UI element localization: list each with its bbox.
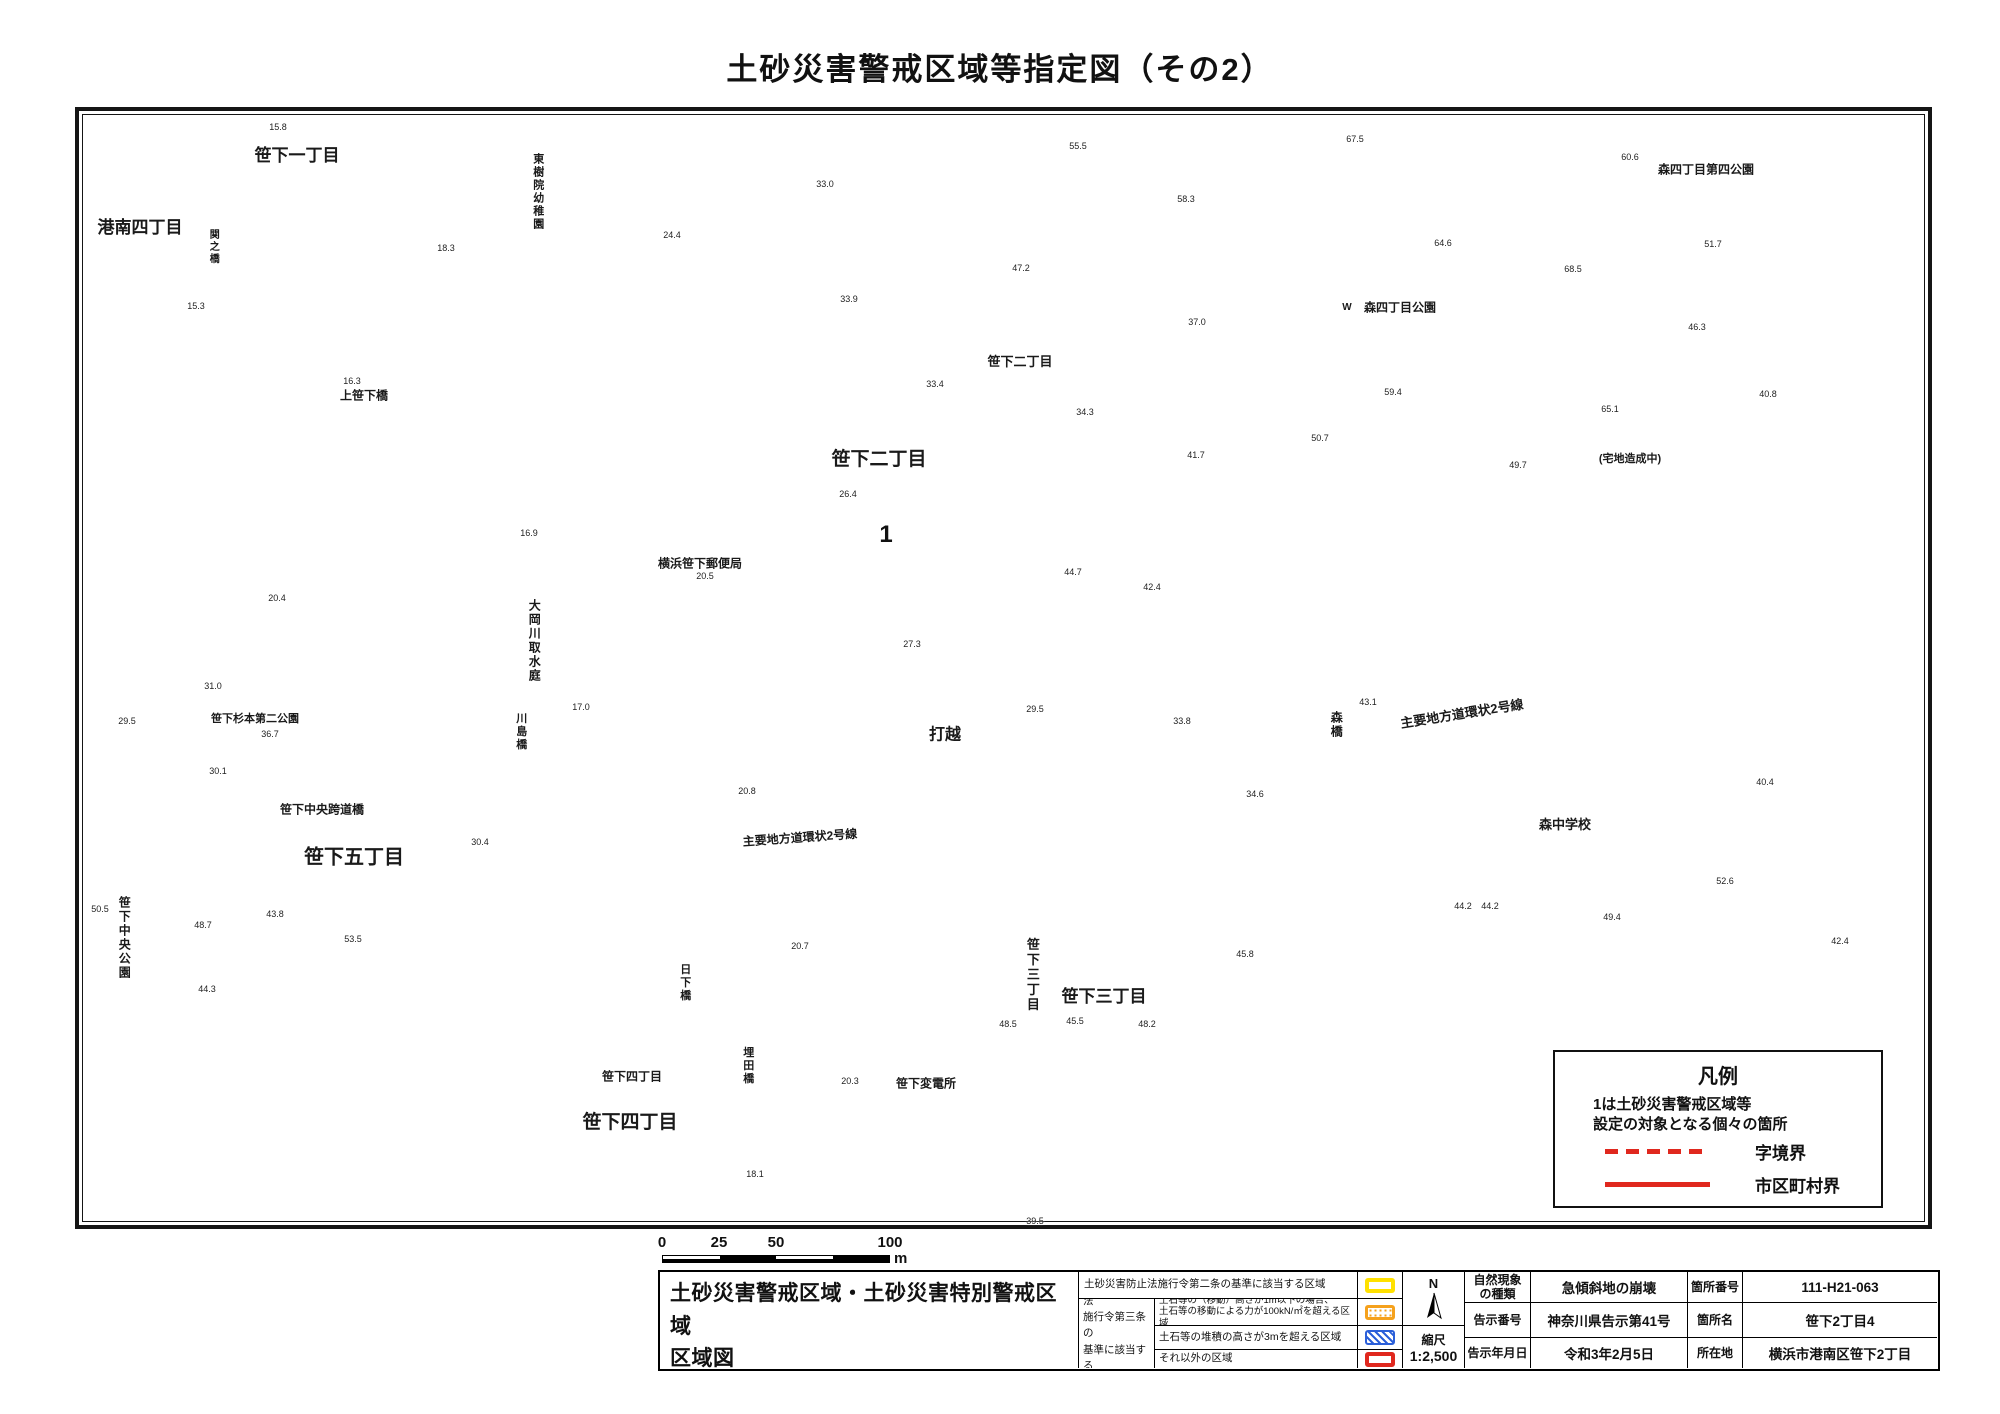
meta-value: 111-H21-063	[1742, 1272, 1937, 1302]
north-arrow-icon	[1423, 1291, 1445, 1321]
meta-label: 告示年月日	[1464, 1337, 1530, 1368]
meta-label: 所在地	[1687, 1337, 1742, 1368]
north-indicator-cell: N	[1402, 1272, 1464, 1325]
legend-description: 1は土砂災害警戒区域等 設定の対象となる個々の箇所	[1593, 1095, 1881, 1136]
scale-unit: m	[894, 1250, 907, 1267]
solid-boundary-sample-icon	[1605, 1182, 1710, 1187]
yellow-outline-swatch-icon	[1365, 1278, 1395, 1293]
meta-label: 箇所番号	[1687, 1272, 1742, 1302]
blue-hatch-swatch-icon	[1365, 1330, 1395, 1345]
scale-tick: 50	[768, 1234, 785, 1251]
legend-row-deposit-3m: 土石等の堆積の高さが3mを超える区域	[1154, 1325, 1357, 1349]
meta-value: 横浜市港南区笹下2丁目	[1742, 1337, 1937, 1368]
scale-cell: 縮尺 1:2,500	[1402, 1325, 1464, 1368]
meta-value: 令和3年2月5日	[1530, 1337, 1687, 1368]
map-legend-box: 凡例 1は土砂災害警戒区域等 設定の対象となる個々の箇所 字境界 市区町村界	[1553, 1050, 1883, 1208]
legend-row-article2: 土砂災害防止法施行令第二条の基準に該当する区域	[1078, 1272, 1357, 1298]
solid-boundary-label: 市区町村界	[1755, 1172, 1840, 1197]
legend-title: 凡例	[1555, 1060, 1881, 1089]
meta-label: 箇所名	[1687, 1302, 1742, 1337]
scale-value: 1:2,500	[1410, 1348, 1457, 1364]
meta-label: 自然現象 の種類	[1464, 1272, 1530, 1302]
swatch-cell	[1357, 1325, 1402, 1349]
orange-dots-swatch-icon	[1365, 1305, 1395, 1320]
meta-value: 神奈川県告示第41号	[1530, 1302, 1687, 1337]
dashed-boundary-label: 字境界	[1755, 1139, 1806, 1164]
meta-value: 笹下2丁目4	[1742, 1302, 1937, 1337]
swatch-cell	[1357, 1298, 1402, 1325]
north-label: N	[1429, 1276, 1438, 1291]
scale-tick: 100	[877, 1234, 902, 1251]
legend-row-debris-1m: 土石等の（移動）高さが1m以下の場合、 土石等の移動による力が100kN/㎡を超…	[1154, 1298, 1357, 1325]
scale-label: 縮尺	[1421, 1331, 1445, 1348]
legend-article3-group-label: 土砂災害防止法 施行令第三条の 基準に該当する 区域	[1078, 1298, 1154, 1368]
legend-row-other: それ以外の区域	[1154, 1349, 1357, 1368]
scale-tick: 0	[658, 1234, 666, 1251]
info-table: 土砂災害警戒区域・土砂災害特別警戒区域区域図 土砂災害防止法施行令第二条の基準に…	[658, 1270, 1940, 1371]
scale-bar-ruler	[662, 1255, 890, 1263]
swatch-cell	[1357, 1272, 1402, 1298]
red-outline-swatch-icon	[1365, 1352, 1395, 1367]
swatch-cell	[1357, 1349, 1402, 1368]
dashed-boundary-sample-icon	[1605, 1149, 1710, 1154]
meta-value: 急傾斜地の崩壊	[1530, 1272, 1687, 1302]
meta-label: 告示番号	[1464, 1302, 1530, 1337]
sheet-title-cell: 土砂災害警戒区域・土砂災害特別警戒区域区域図	[660, 1272, 1078, 1368]
scale-tick: 25	[711, 1234, 728, 1251]
scale-bar: 0 25 50 100 m	[655, 1234, 915, 1272]
